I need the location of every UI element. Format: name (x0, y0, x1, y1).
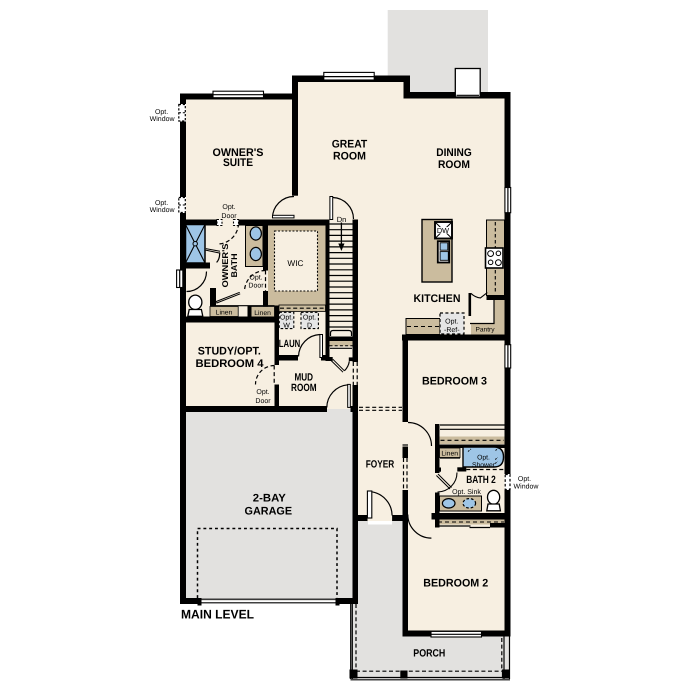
svg-text:2-BAY: 2-BAY (253, 493, 287, 505)
svg-text:Opt.: Opt. (477, 455, 490, 462)
svg-text:Opt.: Opt. (445, 319, 458, 326)
svg-text:D: D (307, 323, 312, 330)
svg-text:Opt.: Opt. (280, 315, 293, 322)
svg-text:Shower: Shower (472, 462, 496, 469)
svg-text:ROOM: ROOM (291, 382, 317, 394)
svg-text:FOYER: FOYER (366, 458, 395, 470)
svg-text:GARAGE: GARAGE (245, 506, 293, 518)
svg-text:KITCHEN: KITCHEN (414, 293, 461, 305)
svg-text:WIC: WIC (287, 258, 303, 268)
svg-text:Opt.: Opt. (256, 389, 269, 396)
svg-text:Window: Window (150, 115, 176, 123)
svg-text:Door: Door (221, 213, 237, 220)
svg-text:-Ref-: -Ref- (444, 326, 460, 334)
svg-text:GREAT: GREAT (332, 139, 368, 151)
svg-text:BEDROOM 2: BEDROOM 2 (423, 578, 488, 590)
svg-text:Pantry: Pantry (475, 326, 495, 333)
svg-text:Linen: Linen (216, 310, 233, 317)
svg-text:Linen: Linen (441, 450, 458, 457)
svg-text:MAIN LEVEL: MAIN LEVEL (181, 607, 254, 621)
svg-text:STUDY/OPT.: STUDY/OPT. (198, 346, 261, 358)
svg-text:W: W (283, 323, 290, 330)
svg-text:Opt.: Opt. (518, 476, 531, 483)
svg-text:Window: Window (514, 483, 540, 491)
svg-text:Linen: Linen (254, 310, 271, 317)
svg-text:BEDROOM 4: BEDROOM 4 (196, 358, 265, 370)
svg-text:Opt. Sink: Opt. Sink (452, 488, 481, 496)
svg-text:Window: Window (150, 206, 176, 214)
svg-text:LAUN: LAUN (279, 338, 301, 350)
svg-text:BATH 2: BATH 2 (466, 474, 496, 486)
svg-text:PORCH: PORCH (413, 647, 445, 659)
svg-text:SUITE: SUITE (223, 157, 253, 169)
svg-text:DINING: DINING (436, 147, 472, 159)
svg-text:ROOM: ROOM (333, 151, 366, 163)
svg-text:DW: DW (437, 226, 449, 235)
svg-text:BATH: BATH (229, 254, 239, 278)
svg-text:Opt.: Opt. (249, 275, 262, 282)
svg-text:Door: Door (248, 283, 264, 290)
svg-text:Door: Door (255, 398, 271, 405)
svg-text:ROOM: ROOM (438, 159, 470, 171)
svg-text:Dn: Dn (337, 215, 347, 224)
svg-text:Opt.: Opt. (155, 109, 168, 116)
svg-text:Opt.: Opt. (303, 315, 316, 322)
svg-text:Opt.: Opt. (222, 204, 235, 211)
svg-text:BEDROOM 3: BEDROOM 3 (422, 376, 487, 388)
